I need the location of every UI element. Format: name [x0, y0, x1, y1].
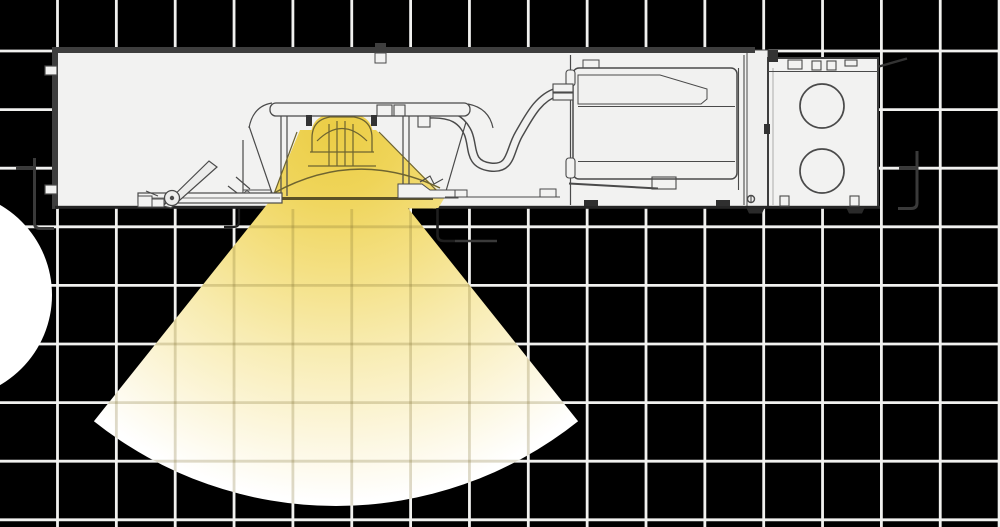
- jbox-foot-left: [746, 207, 765, 214]
- mounting-tab-lower: [45, 185, 57, 194]
- downlight-section-figure: [0, 0, 1000, 527]
- jbox-foot-right: [846, 207, 865, 214]
- technical-illustration: [0, 0, 1000, 527]
- housing-top-rail: [52, 47, 755, 53]
- driver-foot-left: [584, 200, 598, 206]
- conduit-fitting-right: [553, 84, 573, 92]
- top-nub: [375, 43, 386, 48]
- junction-box: [768, 58, 878, 207]
- mounting-plate: [270, 103, 470, 116]
- jbox-corner-block: [768, 50, 778, 62]
- mounting-tab-upper: [45, 66, 57, 75]
- ceiling-line-right: [433, 206, 880, 209]
- top-hanger-tab: [375, 53, 386, 63]
- driver-tab-bottom: [566, 158, 575, 178]
- led-driver: [573, 68, 737, 179]
- lamp-glow: [311, 114, 373, 168]
- driver-foot-right: [716, 200, 730, 206]
- end-plate-nub: [764, 124, 770, 134]
- spring-bracket: [540, 189, 556, 197]
